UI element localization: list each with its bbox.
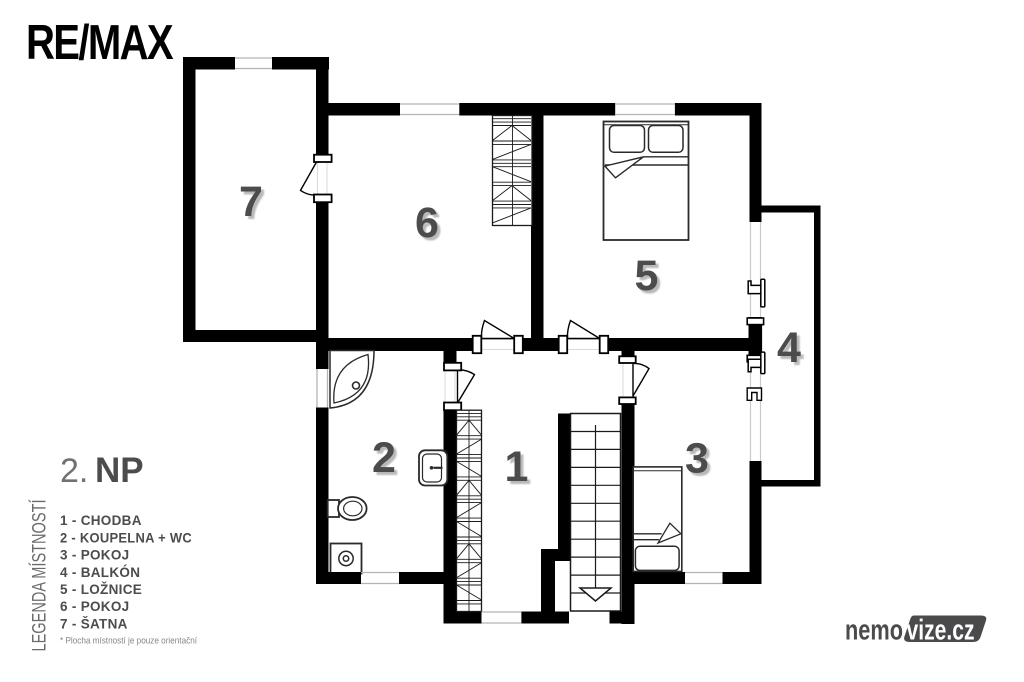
svg-text:RE/MAX: RE/MAX <box>26 16 174 70</box>
svg-text:vize.cz: vize.cz <box>907 615 975 647</box>
svg-text:5 - LOŽNICE: 5 - LOŽNICE <box>60 582 142 597</box>
svg-text:LEGENDA MÍSTNOSTÍ: LEGENDA MÍSTNOSTÍ <box>30 499 51 652</box>
svg-text:nemo: nemo <box>845 615 903 647</box>
svg-text:2: 2 <box>372 434 396 482</box>
svg-text:2 - KOUPELNA + WC: 2 - KOUPELNA + WC <box>60 530 192 545</box>
svg-text:3 - POKOJ: 3 - POKOJ <box>60 548 129 563</box>
svg-text:6 - POKOJ: 6 - POKOJ <box>60 599 129 614</box>
svg-text:5: 5 <box>635 252 659 300</box>
svg-text:* Plocha místností je pouze or: * Plocha místností je pouze orientační <box>60 636 197 646</box>
svg-text:3: 3 <box>685 435 709 483</box>
svg-text:4: 4 <box>777 324 801 372</box>
svg-text:1: 1 <box>505 443 529 491</box>
svg-text:7: 7 <box>239 178 263 226</box>
svg-text:NP: NP <box>95 451 144 490</box>
svg-text:7 - ŠATNA: 7 - ŠATNA <box>60 616 128 631</box>
svg-text:2.: 2. <box>60 452 88 490</box>
svg-text:4 - BALKÓN: 4 - BALKÓN <box>60 565 140 580</box>
svg-text:6: 6 <box>415 199 439 247</box>
svg-text:1 - CHODBA: 1 - CHODBA <box>60 513 142 528</box>
